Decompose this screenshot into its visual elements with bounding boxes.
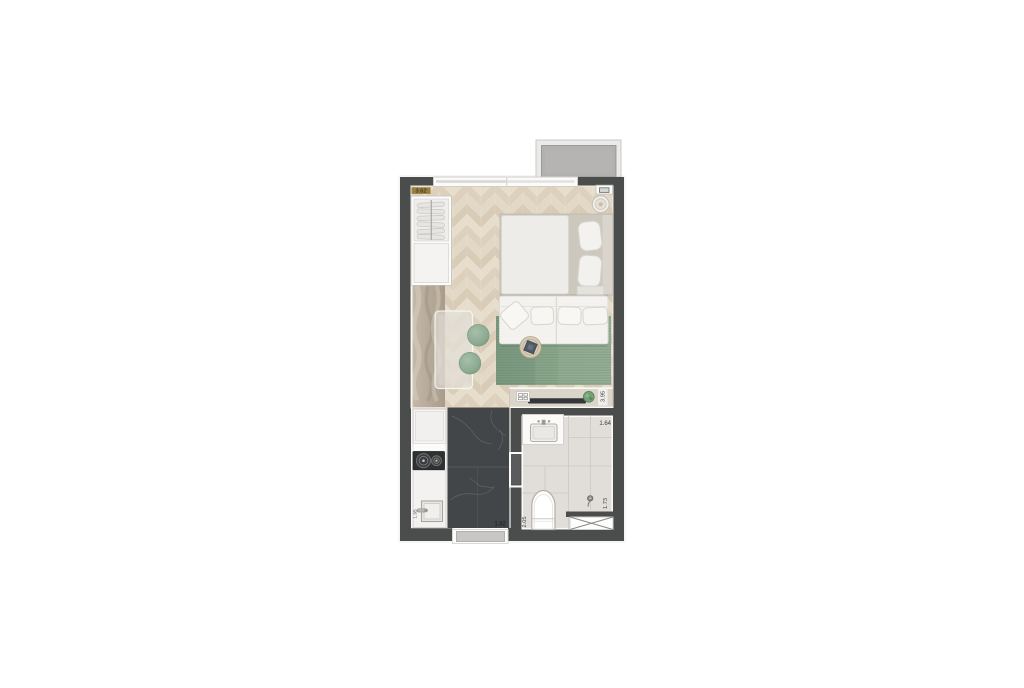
svg-text:1.95: 1.95 (412, 509, 418, 519)
svg-text:3.62: 3.62 (416, 189, 427, 195)
svg-text:1.82: 1.82 (494, 522, 506, 528)
svg-text:1.73: 1.73 (603, 498, 609, 509)
svg-text:2.05: 2.05 (522, 517, 528, 528)
svg-text:1.64: 1.64 (599, 421, 611, 427)
svg-text:3.95: 3.95 (600, 391, 606, 402)
